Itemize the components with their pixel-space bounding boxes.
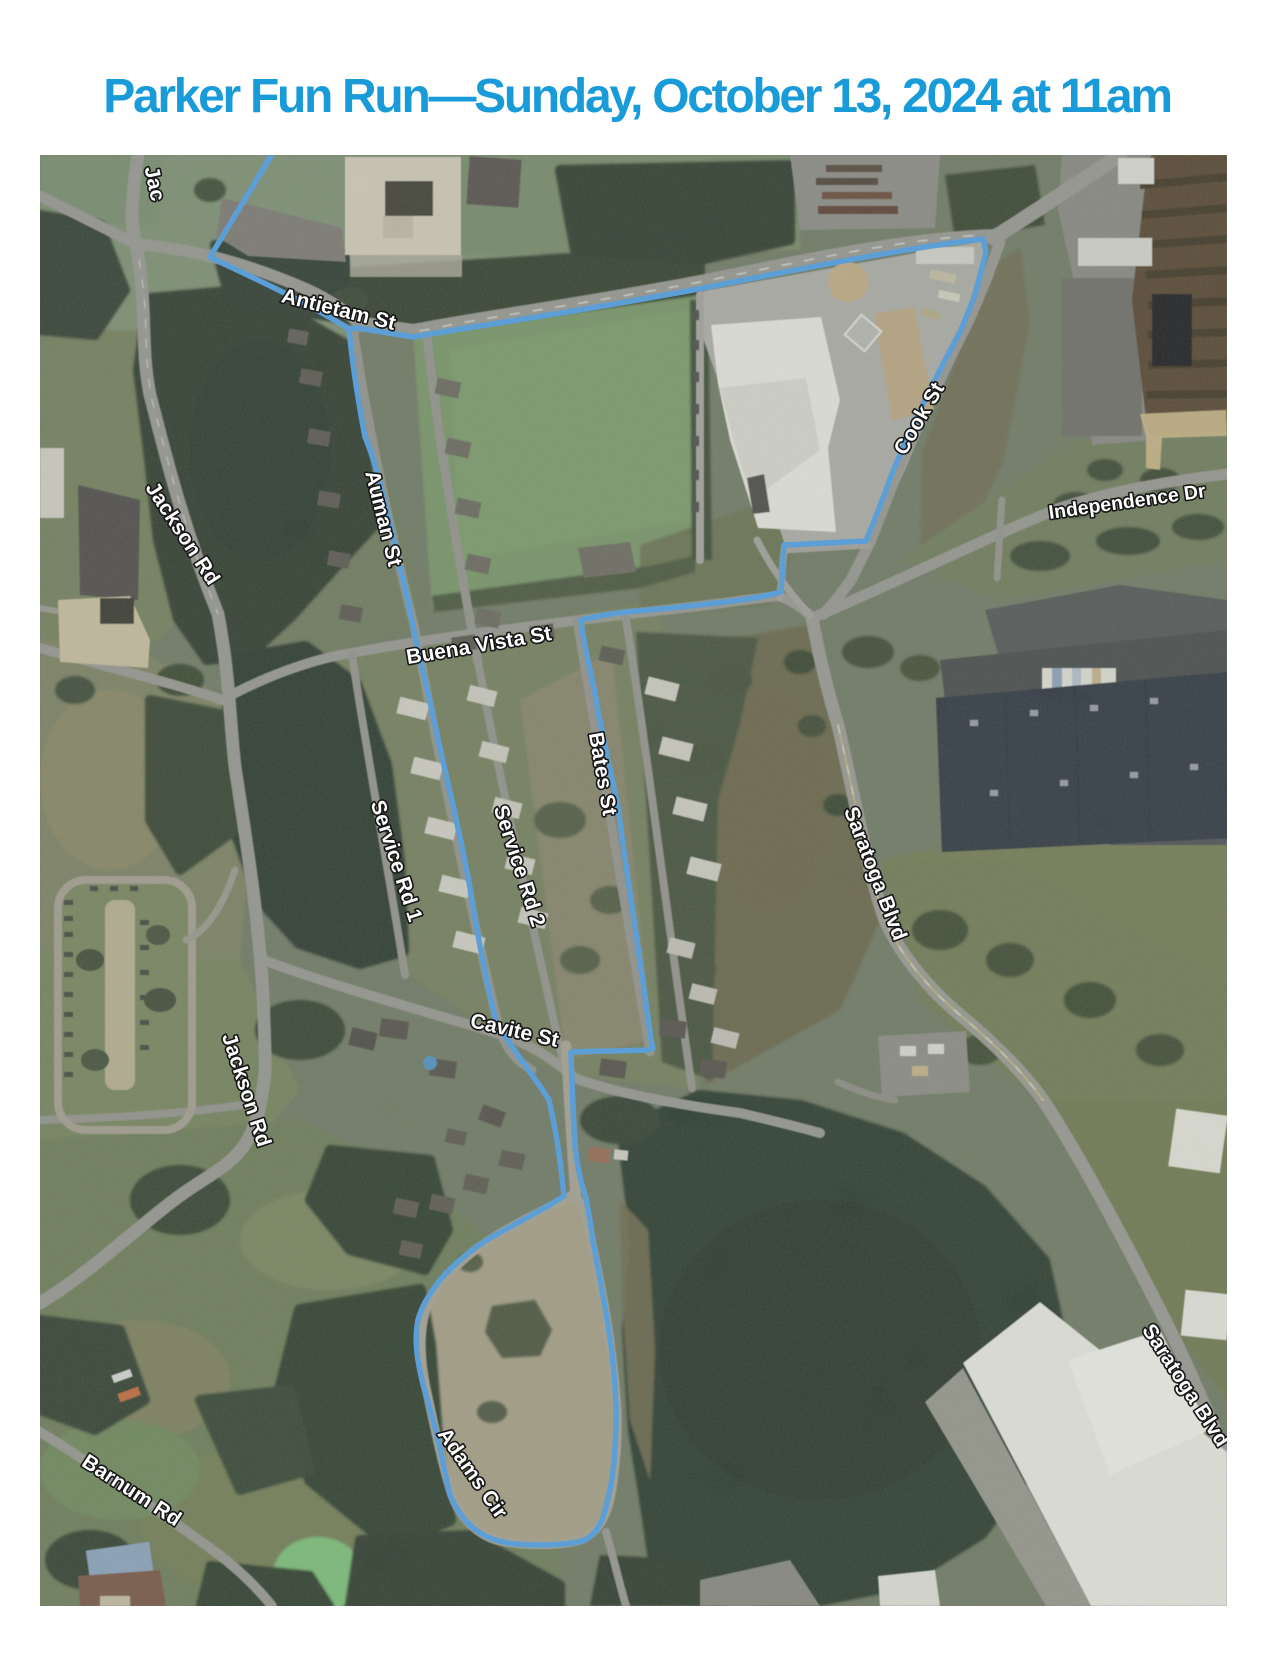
svg-text:Parker Fun Run—Sunday, October: Parker Fun Run—Sunday, October 13, 2024 … (103, 70, 1170, 123)
